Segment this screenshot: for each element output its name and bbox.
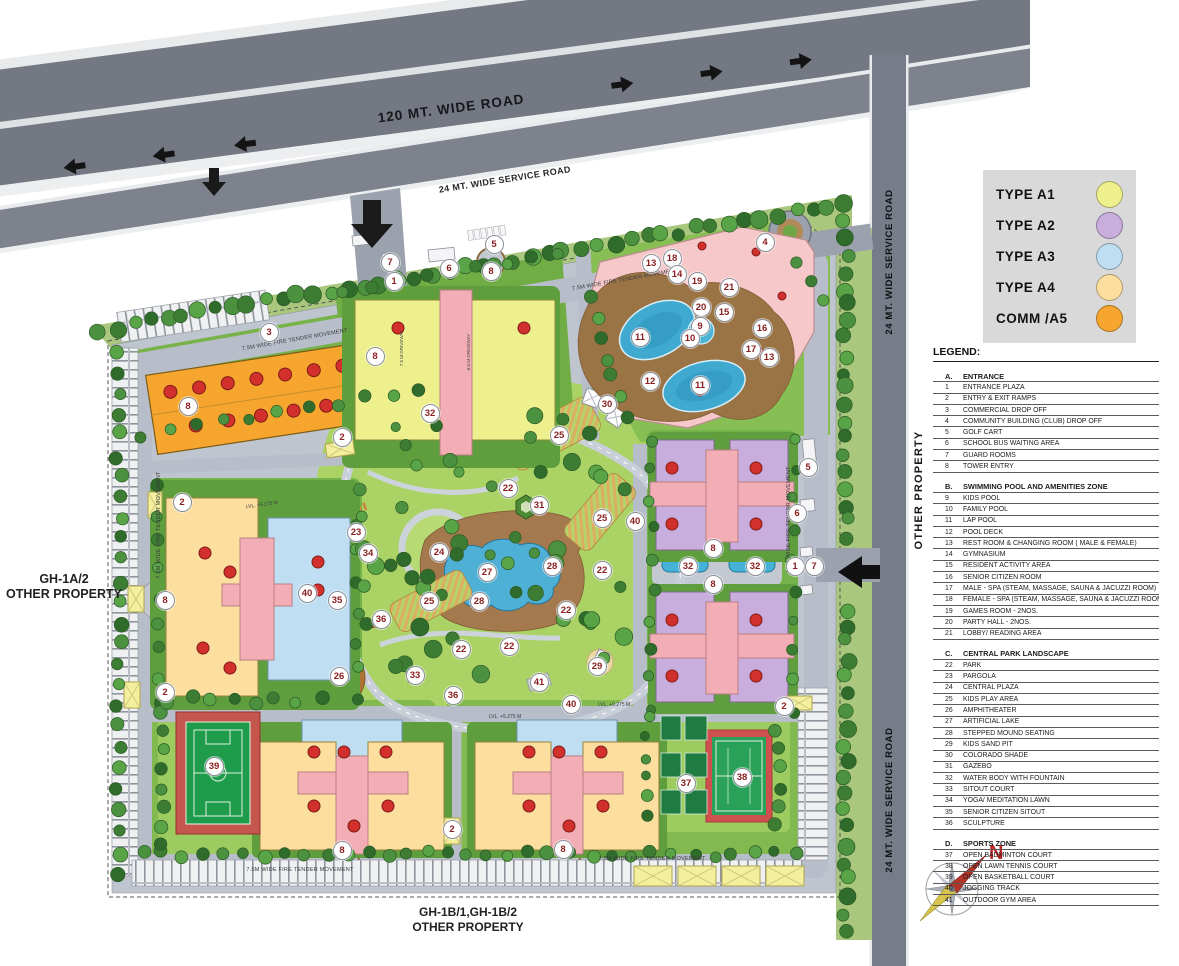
type-legend-label: COMM /A5 (996, 311, 1068, 326)
legend-item-num: 9 (933, 495, 963, 502)
map-marker-25: 25 (593, 509, 612, 528)
legend-item-num: 20 (933, 619, 963, 626)
legend-item: 16SENIOR CITIZEN ROOM (933, 572, 1159, 583)
legend-item-num: 22 (933, 662, 963, 669)
legend-item-label: ENTRY & EXIT RAMPS (963, 395, 1159, 402)
map-marker-5: 5 (799, 458, 818, 477)
legend-item: 33SITOUT COURT (933, 784, 1159, 795)
map-marker-11: 11 (691, 376, 710, 395)
legend-item-label: POOL DECK (963, 529, 1159, 536)
legend-item-num: 39 (933, 874, 963, 881)
fire-tender-label: 7.5M WIDE FIRE TENDER MOVEMENT (598, 856, 706, 862)
legend-item: 1ENTRANCE PLAZA (933, 382, 1159, 393)
map-marker-39: 39 (205, 757, 224, 776)
legend-item-label: SCULPTURE (963, 820, 1159, 827)
site-plan-canvas: 120 MT. WIDE ROAD 24 MT. WIDE SERVICE RO… (0, 0, 1179, 966)
map-marker-19: 19 (688, 272, 707, 291)
map-marker-32: 32 (746, 557, 765, 576)
legend-section: D.SPORTS ZONE37OPEN BADMINTON COURT38OPE… (933, 839, 1173, 907)
map-marker-6: 6 (440, 259, 459, 278)
legend-item: 3COMMERCIAL DROP OFF (933, 405, 1159, 416)
fire-tender-label: 7.5M WIDE FIRE TENDER MOVEMENT (246, 867, 354, 873)
legend-item-label: SENIOR CITIZEN ROOM (963, 574, 1159, 581)
legend-item: 32WATER BODY WITH FOUNTAIN (933, 773, 1159, 784)
legend-item-num: 1 (933, 384, 963, 391)
legend-item: 29KIDS SAND PIT (933, 739, 1159, 750)
type-legend-row: TYPE A1 (983, 179, 1136, 210)
legend-item-label: PARK (963, 662, 1159, 669)
map-marker-8: 8 (333, 841, 352, 860)
map-marker-31: 31 (530, 496, 549, 515)
map-marker-22: 22 (452, 640, 471, 659)
legend-item-num: 2 (933, 395, 963, 402)
legend-item: 24CENTRAL PLAZA (933, 683, 1159, 694)
legend-item-num: 32 (933, 775, 963, 782)
map-marker-8: 8 (156, 591, 175, 610)
map-marker-16: 16 (753, 319, 772, 338)
legend-item-num: 34 (933, 797, 963, 804)
legend-item-label: COMMERCIAL DROP OFF (963, 407, 1159, 414)
legend-item-num: 17 (933, 585, 963, 592)
legend-item: 20PARTY HALL - 2NOS. (933, 617, 1159, 628)
legend-section-id: D. (933, 839, 963, 848)
map-marker-21: 21 (720, 278, 739, 297)
legend-item: 31GAZEBO (933, 762, 1159, 773)
legend-item-num: 16 (933, 574, 963, 581)
legend-item-num: 21 (933, 630, 963, 637)
legend-item-label: SITOUT COURT (963, 786, 1159, 793)
map-marker-13: 13 (760, 348, 779, 367)
map-marker-41: 41 (530, 673, 549, 692)
map-marker-28: 28 (470, 592, 489, 611)
map-marker-3: 3 (260, 323, 279, 342)
legend-item-num: 35 (933, 809, 963, 816)
legend-item-label: FAMILY POOL (963, 506, 1159, 513)
legend-item-label: PARTY HALL - 2NOS. (963, 619, 1159, 626)
legend-item-label: WATER BODY WITH FOUNTAIN (963, 775, 1159, 782)
legend-item: 6SCHOOL BUS WAITING AREA (933, 439, 1159, 450)
map-marker-8: 8 (554, 840, 573, 859)
legend-item-label: COLORADO SHADE (963, 752, 1159, 759)
legend-item-label: ARTIFICIAL LAKE (963, 718, 1159, 725)
legend-item-label: CENTRAL PLAZA (963, 684, 1159, 691)
legend-item-label: GAZEBO (963, 763, 1159, 770)
legend-item-num: 11 (933, 517, 963, 524)
type-legend-row: COMM /A5 (983, 303, 1136, 334)
driveway-75-label: 7.5 M DRIVEWAY (399, 330, 404, 367)
type-legend-row: TYPE A4 (983, 272, 1136, 303)
legend-item-num: 13 (933, 540, 963, 547)
legend-section: B.SWIMMING POOL AND AMENITIES ZONE9KIDS … (933, 482, 1173, 640)
legend-item-num: 38 (933, 863, 963, 870)
map-marker-17: 17 (742, 340, 761, 359)
map-marker-5: 5 (485, 235, 504, 254)
legend-section-title: ENTRANCE (963, 372, 1159, 381)
map-marker-6: 6 (788, 504, 807, 523)
legend-item-num: 3 (933, 407, 963, 414)
map-marker-15: 15 (715, 303, 734, 322)
legend-item-label: OPEN BADMINTON COURT (963, 852, 1159, 859)
map-marker-26: 26 (330, 667, 349, 686)
legend-item: 2ENTRY & EXIT RAMPS (933, 394, 1159, 405)
legend-item-num: 12 (933, 529, 963, 536)
legend-item-num: 33 (933, 786, 963, 793)
map-marker-12: 12 (641, 372, 660, 391)
legend-item: 18FEMALE - SPA (STEAM, MASSAGE, SAUNA & … (933, 595, 1159, 606)
legend-item-label: RESIDENT ACTIVITY AREA (963, 562, 1159, 569)
legend-item-num: 18 (933, 596, 963, 603)
map-marker-1: 1 (385, 272, 404, 291)
legend-item-label: AMPHITHEATER (963, 707, 1159, 714)
legend-item-num: 36 (933, 820, 963, 827)
legend-item-label: FEMALE - SPA (STEAM, MASSAGE, SAUNA & JA… (963, 596, 1159, 603)
legend-item-num: 10 (933, 506, 963, 513)
map-marker-7: 7 (805, 557, 824, 576)
legend-item-num: 7 (933, 452, 963, 459)
legend-item-num: 30 (933, 752, 963, 759)
legend-item-num: 23 (933, 673, 963, 680)
map-marker-35: 35 (328, 591, 347, 610)
map-marker-11: 11 (631, 328, 650, 347)
legend-item: 9KIDS POOL (933, 493, 1159, 504)
level-label: LVL. +0.275 M (598, 702, 630, 708)
legend-section: A.ENTRANCE1ENTRANCE PLAZA2ENTRY & EXIT R… (933, 371, 1173, 473)
legend-item: 19GAMES ROOM - 2NOS. (933, 606, 1159, 617)
map-marker-2: 2 (173, 493, 192, 512)
legend-item-label: GOLF CART (963, 429, 1159, 436)
legend-body: A.ENTRANCE1ENTRANCE PLAZA2ENTRY & EXIT R… (933, 371, 1173, 906)
legend-item-label: KIDS PLAY AREA (963, 696, 1159, 703)
legend-item: 8TOWER ENTRY (933, 461, 1159, 472)
map-marker-32: 32 (421, 404, 440, 423)
map-marker-22: 22 (500, 637, 519, 656)
right-road-label-top: 24 MT. WIDE SERVICE ROAD (884, 189, 895, 334)
legend-item-num: 26 (933, 707, 963, 714)
legend-item: 39OPEN BASKETBALL COURT (933, 872, 1159, 883)
legend-item-label: STEPPED MOUND SEATING (963, 730, 1159, 737)
legend-item-num: 29 (933, 741, 963, 748)
type-legend-row: TYPE A2 (983, 210, 1136, 241)
map-marker-32: 32 (679, 557, 698, 576)
legend-section-id: B. (933, 482, 963, 491)
legend-item-label: MALE - SPA (STEAM, MASSAGE, SAUNA & JACU… (963, 585, 1159, 592)
legend-item-label: OPEN LAWN TENNIS COURT (963, 863, 1159, 870)
legend-item-label: ENTRANCE PLAZA (963, 384, 1159, 391)
legend-item-label: SENIOR CITIZEN SITOUT (963, 809, 1159, 816)
map-marker-8: 8 (179, 397, 198, 416)
legend-item-num: 8 (933, 463, 963, 470)
legend-item-label: OUTDOOR GYM AREA (963, 897, 1159, 904)
legend-item-label: GYMNASIUM (963, 551, 1159, 558)
legend-item: 10FAMILY POOL (933, 504, 1159, 515)
map-marker-22: 22 (557, 601, 576, 620)
map-marker-25: 25 (420, 592, 439, 611)
map-marker-36: 36 (372, 610, 391, 629)
type-legend-label: TYPE A4 (996, 280, 1055, 295)
type-legend-label: TYPE A2 (996, 218, 1055, 233)
legend-item: 26AMPHITHEATER (933, 705, 1159, 716)
other-property-label-right: OTHER PROPERTY (913, 431, 925, 550)
legend-item-label: REST ROOM & CHANGING ROOM ( MALE & FEMAL… (963, 540, 1159, 547)
map-marker-7: 7 (381, 253, 400, 272)
map-marker-28: 28 (543, 557, 562, 576)
legend-item: 27ARTIFICIAL LAKE (933, 717, 1159, 728)
legend-item-num: 28 (933, 730, 963, 737)
legend-title: LEGEND: (933, 346, 1159, 362)
right-service-road: 24 MT. WIDE SERVICE ROAD 24 MT. WIDE SER… (870, 55, 926, 966)
map-marker-29: 29 (588, 657, 607, 676)
legend-item-label: GUARD ROOMS (963, 452, 1159, 459)
legend-section-header: D.SPORTS ZONE (933, 839, 1159, 850)
legend-item: 28STEPPED MOUND SEATING (933, 728, 1159, 739)
legend-section-header: A.ENTRANCE (933, 371, 1159, 382)
legend-item: 40JOGGING TRACK (933, 884, 1159, 895)
type-legend-label: TYPE A3 (996, 249, 1055, 264)
legend-item: 36SCULPTURE (933, 818, 1159, 829)
map-marker-30: 30 (598, 395, 617, 414)
map-marker-23: 23 (347, 523, 366, 542)
legend-item-num: 5 (933, 429, 963, 436)
legend-item-label: TOWER ENTRY (963, 463, 1159, 470)
map-marker-40: 40 (562, 695, 581, 714)
legend-item-label: LOBBY/ READING AREA (963, 630, 1159, 637)
legend-item-num: 14 (933, 551, 963, 558)
legend-section-title: SWIMMING POOL AND AMENITIES ZONE (963, 482, 1159, 491)
legend-item-num: 6 (933, 440, 963, 447)
legend-item: 41OUTDOOR GYM AREA (933, 895, 1159, 906)
legend-item: 34YOGA/ MEDITATION LAWN (933, 796, 1159, 807)
legend-item: 11LAP POOL (933, 516, 1159, 527)
map-marker-4: 4 (756, 233, 775, 252)
gh1b-property-label: GH-1B/1,GH-1B/2 OTHER PROPERTY (368, 905, 568, 935)
type-legend-label: TYPE A1 (996, 187, 1055, 202)
legend-item: 35SENIOR CITIZEN SITOUT (933, 807, 1159, 818)
gh1a-property-label: GH-1A/2 OTHER PROPERTY (0, 572, 128, 602)
legend-section-title: SPORTS ZONE (963, 839, 1159, 848)
driveway-60-label: 6.0 M DRIVEWAY (466, 334, 471, 371)
legend-item-num: 41 (933, 897, 963, 904)
legend-item-label: SCHOOL BUS WAITING AREA (963, 440, 1159, 447)
map-marker-10: 10 (681, 329, 700, 348)
map-marker-2: 2 (775, 697, 794, 716)
legend-item: 5GOLF CART (933, 427, 1159, 438)
map-marker-2: 2 (443, 820, 462, 839)
gh1b-line2: OTHER PROPERTY (368, 920, 568, 935)
legend-item-num: 4 (933, 418, 963, 425)
map-marker-34: 34 (359, 544, 378, 563)
legend-item: 22PARK (933, 660, 1159, 671)
legend-item: 7GUARD ROOMS (933, 450, 1159, 461)
map-marker-24: 24 (430, 543, 449, 562)
type-color-swatch-icon (1096, 305, 1123, 332)
legend-item-num: 15 (933, 562, 963, 569)
legend-item: 12POOL DECK (933, 527, 1159, 538)
legend-item-label: KIDS SAND PIT (963, 741, 1159, 748)
right-road-label-bottom: 24 MT. WIDE SERVICE ROAD (884, 727, 895, 872)
legend-section: C.CENTRAL PARK LANDSCAPE22PARK23PARGOLA2… (933, 649, 1173, 830)
map-marker-2: 2 (333, 428, 352, 447)
legend-item-label: YOGA/ MEDITATION LAWN (963, 797, 1159, 804)
legend-section-title: CENTRAL PARK LANDSCAPE (963, 649, 1159, 658)
type-color-swatch-icon (1096, 212, 1123, 239)
legend-item-label: LAP POOL (963, 517, 1159, 524)
legend-item-label: JOGGING TRACK (963, 885, 1159, 892)
legend-section-header: B.SWIMMING POOL AND AMENITIES ZONE (933, 482, 1159, 493)
legend-item-num: 25 (933, 696, 963, 703)
legend-item-num: 37 (933, 852, 963, 859)
map-marker-40: 40 (298, 584, 317, 603)
legend-item: 17MALE - SPA (STEAM, MASSAGE, SAUNA & JA… (933, 583, 1159, 594)
map-marker-40: 40 (626, 512, 645, 531)
map-marker-38: 38 (733, 768, 752, 787)
legend-item: 4COMMUNITY BUILDING (CLUB) DROP OFF (933, 416, 1159, 427)
type-color-swatch-icon (1096, 181, 1123, 208)
map-marker-8: 8 (704, 539, 723, 558)
legend-item: 38OPEN LAWN TENNIS COURT (933, 861, 1159, 872)
gh1a-line1: GH-1A/2 (0, 572, 128, 587)
legend-item: 23PARGOLA (933, 671, 1159, 682)
map-marker-25: 25 (550, 426, 569, 445)
type-legend-panel: TYPE A1TYPE A2TYPE A3TYPE A4COMM /A5 (983, 170, 1136, 343)
legend-section-id: A. (933, 372, 963, 381)
legend-item: 25KIDS PLAY AREA (933, 694, 1159, 705)
legend-item-label: OPEN BASKETBALL COURT (963, 874, 1159, 881)
gh1b-line1: GH-1B/1,GH-1B/2 (368, 905, 568, 920)
legend-section-header: C.CENTRAL PARK LANDSCAPE (933, 649, 1159, 660)
legend-item-num: 40 (933, 885, 963, 892)
legend-item-label: COMMUNITY BUILDING (CLUB) DROP OFF (963, 418, 1159, 425)
legend-item-label: KIDS POOL (963, 495, 1159, 502)
legend-item-num: 31 (933, 763, 963, 770)
legend-item-label: PARGOLA (963, 673, 1159, 680)
type-color-swatch-icon (1096, 243, 1123, 270)
legend-item-num: 19 (933, 608, 963, 615)
map-marker-2: 2 (156, 683, 175, 702)
legend-section-id: C. (933, 649, 963, 658)
legend-item: 21LOBBY/ READING AREA (933, 629, 1159, 640)
map-marker-1: 1 (786, 557, 805, 576)
map-marker-27: 27 (478, 563, 497, 582)
legend-item: 30COLORADO SHADE (933, 751, 1159, 762)
legend-item-num: 27 (933, 718, 963, 725)
fire-tender-label: 7.5M WIDE FIRE TENDER MOVEMENT (156, 471, 162, 579)
legend-item-label: GAMES ROOM - 2NOS. (963, 608, 1159, 615)
map-marker-8: 8 (482, 262, 501, 281)
legend-item: 15RESIDENT ACTIVITY AREA (933, 561, 1159, 572)
map-marker-36: 36 (444, 686, 463, 705)
map-marker-13: 13 (642, 254, 661, 273)
legend-item: 14GYMNASIUM (933, 549, 1159, 560)
map-marker-33: 33 (406, 666, 425, 685)
map-marker-14: 14 (668, 265, 687, 284)
map-marker-22: 22 (593, 561, 612, 580)
map-marker-37: 37 (677, 774, 696, 793)
type-color-swatch-icon (1096, 274, 1123, 301)
map-marker-20: 20 (692, 298, 711, 317)
legend-item-num: 24 (933, 684, 963, 691)
legend-item: 37OPEN BADMINTON COURT (933, 850, 1159, 861)
map-marker-22: 22 (499, 479, 518, 498)
gh1a-line2: OTHER PROPERTY (0, 587, 128, 602)
legend-panel: LEGEND: A.ENTRANCE1ENTRANCE PLAZA2ENTRY … (933, 346, 1173, 906)
map-marker-8: 8 (704, 575, 723, 594)
level-label: LVL. +5.275 M (489, 714, 521, 720)
legend-item: 13REST ROOM & CHANGING ROOM ( MALE & FEM… (933, 538, 1159, 549)
map-marker-8: 8 (366, 347, 385, 366)
type-legend-row: TYPE A3 (983, 241, 1136, 272)
